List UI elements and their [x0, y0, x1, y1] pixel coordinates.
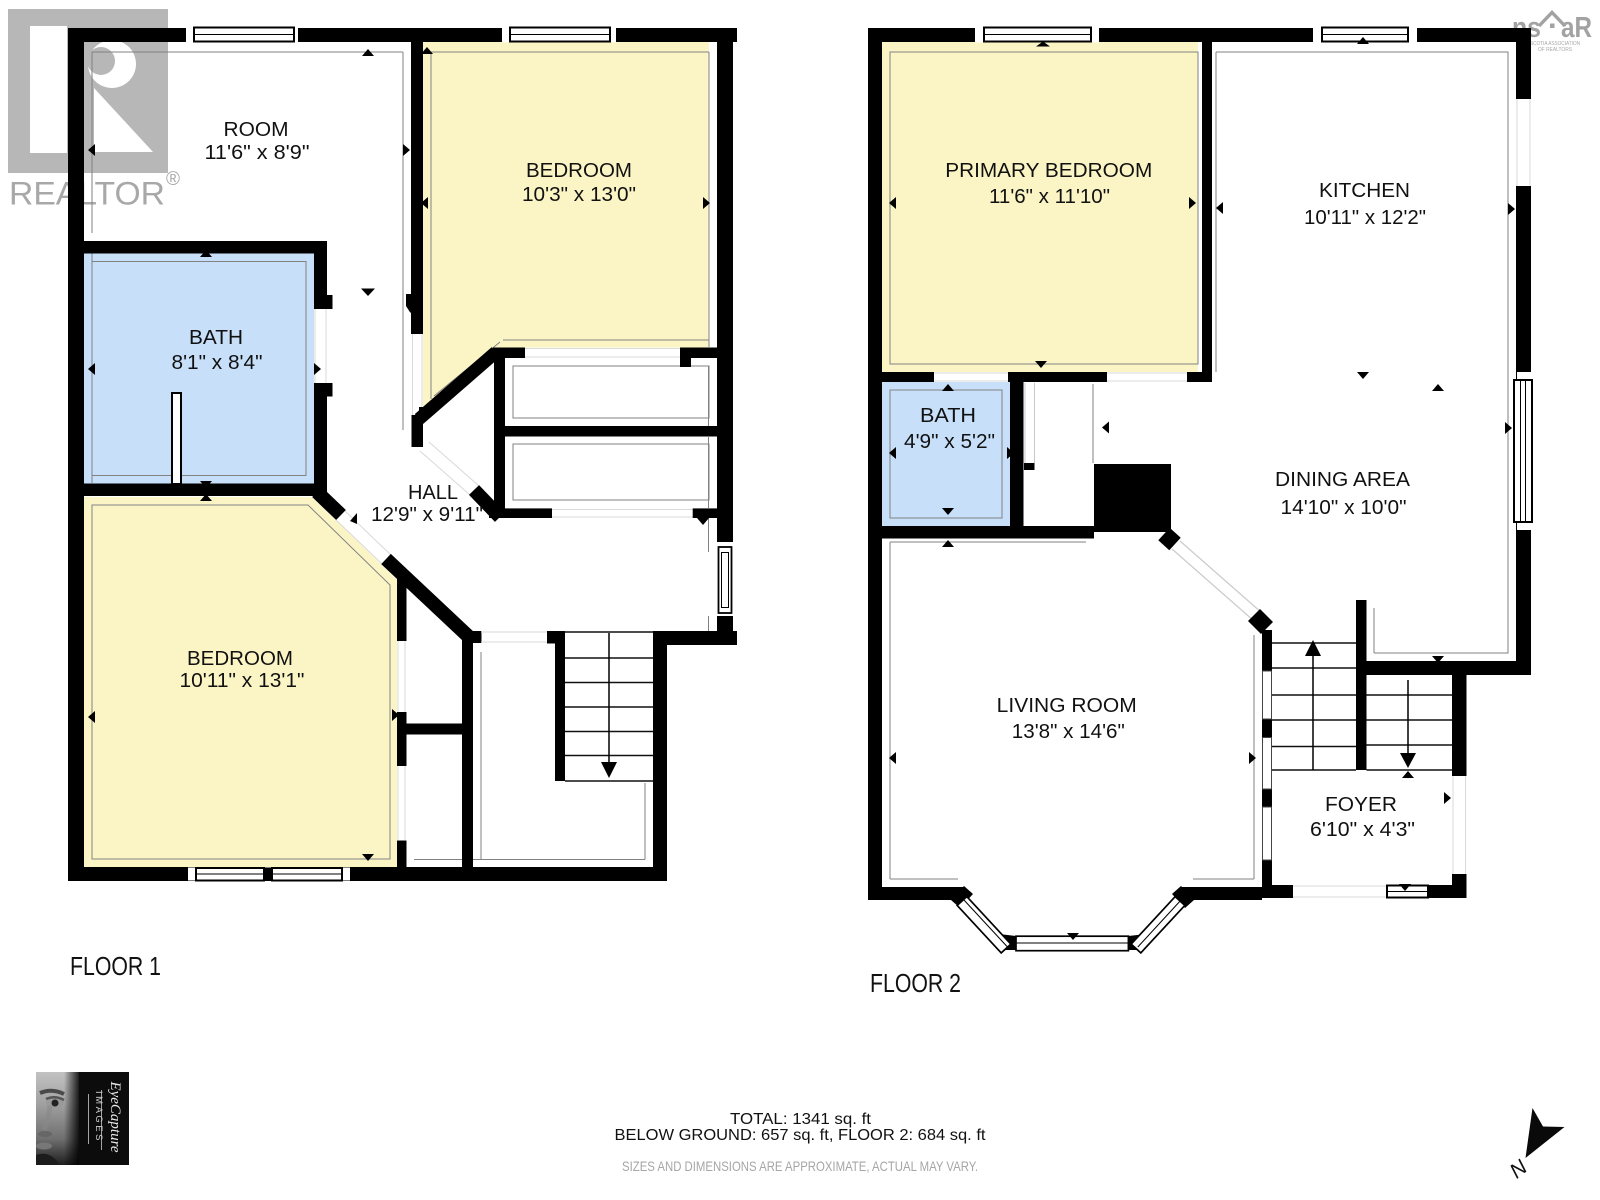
svg-text:8'1" x 8'4": 8'1" x 8'4": [172, 351, 263, 374]
svg-text:11'6" x 11'10": 11'6" x 11'10": [989, 185, 1110, 208]
svg-text:REALTOR: REALTOR: [9, 176, 165, 212]
svg-text:®: ®: [166, 169, 180, 190]
svg-text:BATH: BATH: [920, 404, 976, 427]
svg-text:OF REALTORS: OF REALTORS: [1538, 47, 1572, 53]
svg-text:PRIMARY BEDROOM: PRIMARY BEDROOM: [945, 159, 1152, 182]
svg-text:FLOOR 1: FLOOR 1: [70, 951, 161, 981]
svg-text:FLOOR 2: FLOOR 2: [870, 968, 961, 998]
svg-text:LIVING ROOM: LIVING ROOM: [997, 694, 1137, 717]
svg-text:EyeCapture: EyeCapture: [107, 1080, 123, 1152]
svg-text:SIZES AND DIMENSIONS ARE APPRO: SIZES AND DIMENSIONS ARE APPROXIMATE, AC…: [622, 1158, 978, 1174]
svg-text:10'3" x 13'0": 10'3" x 13'0": [522, 183, 636, 206]
svg-text:6'10" x 4'3": 6'10" x 4'3": [1310, 818, 1415, 841]
svg-text:BELOW GROUND: 657 sq. ft, FLOO: BELOW GROUND: 657 sq. ft, FLOOR 2: 684 s…: [615, 1127, 987, 1144]
svg-text:10'11" x 12'2": 10'11" x 12'2": [1304, 206, 1426, 229]
svg-text:BEDROOM: BEDROOM: [187, 647, 293, 670]
svg-text:11'6" x 8'9": 11'6" x 8'9": [205, 141, 310, 164]
svg-text:BATH: BATH: [189, 326, 243, 349]
svg-text:ROOM: ROOM: [224, 118, 289, 141]
svg-text:12'9" x 9'11": 12'9" x 9'11": [371, 503, 483, 526]
svg-text:KITCHEN: KITCHEN: [1319, 179, 1410, 202]
svg-text:DINING AREA: DINING AREA: [1275, 468, 1410, 491]
svg-text:IMAGES: IMAGES: [93, 1091, 104, 1143]
svg-text:TOTAL: 1341 sq. ft: TOTAL: 1341 sq. ft: [730, 1111, 872, 1128]
svg-text:BEDROOM: BEDROOM: [526, 159, 632, 182]
svg-text:4'9" x 5'2": 4'9" x 5'2": [904, 430, 995, 453]
svg-text:14'10" x 10'0": 14'10" x 10'0": [1281, 496, 1407, 519]
svg-text:10'11" x 13'1": 10'11" x 13'1": [180, 669, 305, 692]
svg-text:FOYER: FOYER: [1325, 793, 1397, 816]
svg-text:13'8" x 14'6": 13'8" x 14'6": [1012, 720, 1125, 743]
svg-text:HALL: HALL: [408, 481, 458, 504]
svg-text:aR: aR: [1561, 12, 1592, 44]
